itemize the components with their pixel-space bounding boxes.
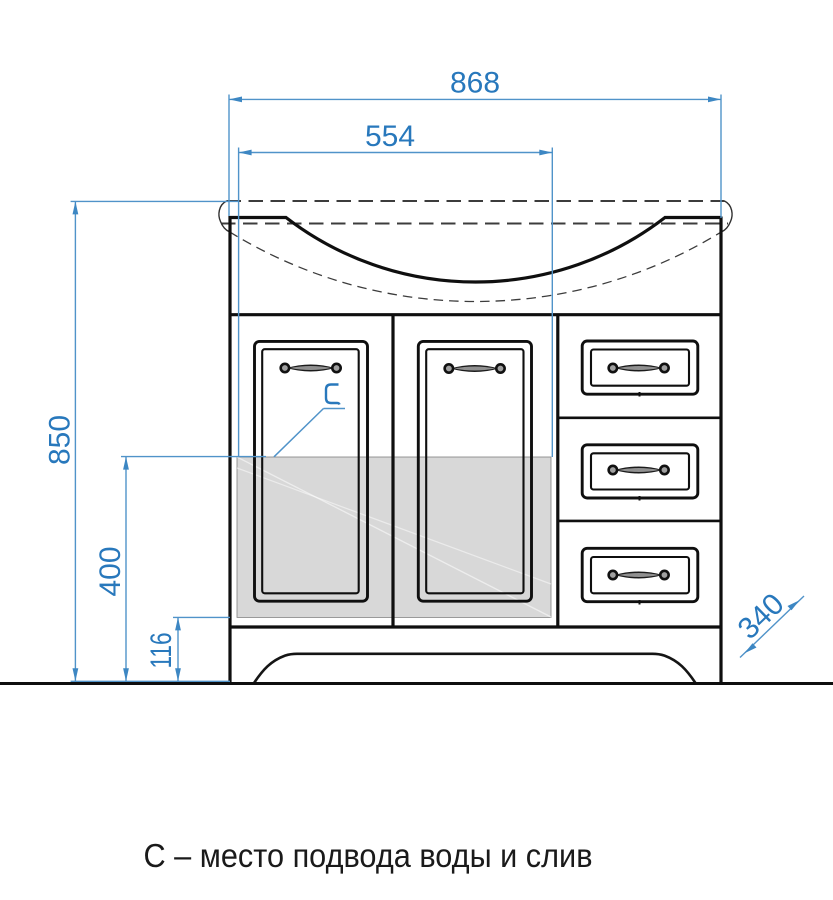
- svg-text:С – место подвода воды и слив: С – место подвода воды и слив: [144, 837, 593, 874]
- svg-text:850: 850: [44, 415, 77, 465]
- svg-text:868: 868: [450, 67, 500, 100]
- svg-text:554: 554: [365, 120, 415, 153]
- svg-text:400: 400: [94, 546, 127, 596]
- svg-text:116: 116: [145, 633, 178, 669]
